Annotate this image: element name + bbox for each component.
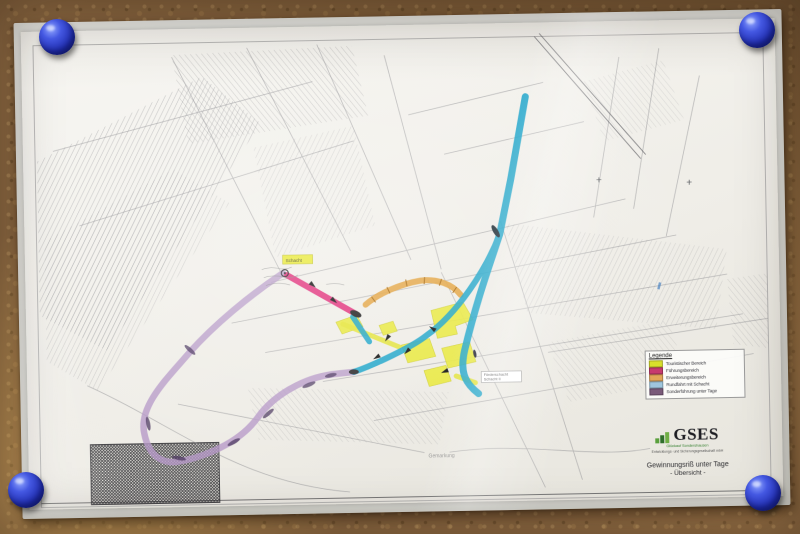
legend-label: Touristischer Bereich <box>666 361 706 366</box>
yellow-tag-label: Schacht <box>283 255 313 265</box>
legend-chip-magenta <box>649 367 663 374</box>
legend-row: Sonderführung unter Tage <box>649 387 741 396</box>
legend-label: Sonderführung unter Tage <box>666 388 717 394</box>
map-title-block: GSES Glückauf Sondershausen Entwicklungs… <box>628 425 747 478</box>
push-pin-top-left <box>39 19 75 55</box>
cross-mark-right: + <box>686 178 692 189</box>
legend-chip-purple <box>649 388 663 395</box>
push-pin-bottom-left <box>8 472 44 508</box>
cross-mark-left: + <box>596 175 602 186</box>
shaft-box-label: Förderschacht Schacht II <box>481 371 521 383</box>
legend-chip-blue <box>649 381 663 388</box>
shaft-box-line2: Schacht II <box>484 377 501 381</box>
legend-label: Führungsbereich <box>666 368 699 373</box>
map-paper: Schacht Förderschacht Schacht II Gemarku… <box>21 18 784 510</box>
district-label: Gemarkung <box>429 453 455 459</box>
shaft-box-line1: Förderschacht <box>484 373 509 377</box>
gses-logo-text: GSES <box>673 425 719 443</box>
legend-label: Erweiterungsbereich <box>666 375 706 380</box>
route-orange <box>365 280 461 305</box>
map-legend: Legende Touristischer Bereich Führungsbe… <box>645 349 746 400</box>
gses-tagline-2: Entwicklungs- und Sicherungsgesellschaft… <box>647 449 727 455</box>
push-pin-top-right <box>739 12 775 48</box>
yellow-tag-text: Schacht <box>286 258 303 263</box>
legend-chip-yellow <box>649 360 663 367</box>
legend-chip-orange <box>649 374 663 381</box>
cork-board: Schacht Förderschacht Schacht II Gemarku… <box>0 0 800 534</box>
gses-logo: GSES <box>628 425 746 444</box>
route-pink <box>287 274 356 315</box>
map-sheet-sleeve: Schacht Förderschacht Schacht II Gemarku… <box>14 9 791 519</box>
green-bars-icon <box>655 431 671 443</box>
push-pin-bottom-right <box>745 475 781 511</box>
route-cyan <box>349 97 531 396</box>
legend-label: Rundfahrt mit Schacht <box>666 382 709 387</box>
gses-tagline-1: Glückauf Sondershausen <box>643 443 732 449</box>
